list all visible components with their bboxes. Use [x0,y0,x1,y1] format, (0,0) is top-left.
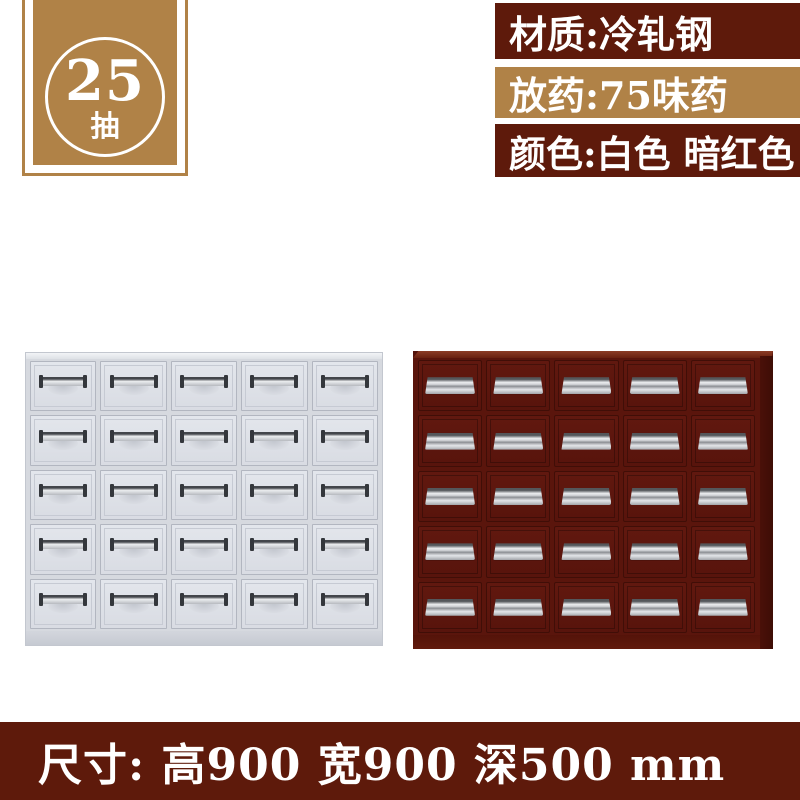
drawer [623,526,687,577]
drawer-handle [698,433,748,450]
drawer [486,471,550,522]
drawer-handle [112,595,156,604]
drawer [486,415,550,466]
spec-label-capacity: 放药:75味药 [495,67,800,118]
badge-inner-square: 25 抽 [33,0,177,165]
drawer-handle [493,377,543,394]
drawer-handle [112,540,156,549]
drawer [171,361,237,411]
drawer [691,582,755,633]
cabinet-red-base [413,635,760,649]
drawer [486,526,550,577]
drawer [554,582,618,633]
cabinet-red-side-panel [760,356,773,649]
cabinet-white-top-edge [26,353,382,359]
spec-label-material: 材质:冷轧钢 [495,3,800,59]
drawer-handle [252,486,296,495]
drawer-handle [630,543,680,560]
drawer [623,415,687,466]
drawer-handle [630,599,680,616]
drawer [171,415,237,465]
drawer [486,582,550,633]
drawer [30,470,96,520]
drawer-handle [425,433,475,450]
drawer [691,471,755,522]
drawer-handle [182,486,226,495]
drawer-handle [41,432,85,441]
drawer-handle [493,433,543,450]
drawer [312,415,378,465]
badge-unit: 抽 [90,112,119,141]
drawer [554,415,618,466]
drawer [171,579,237,629]
drawer [100,361,166,411]
drawer-handle [630,433,680,450]
drawer [418,582,482,633]
drawer-handle [252,377,296,386]
drawer-handle [698,377,748,394]
cabinet-white [25,352,383,646]
drawer-handle [182,540,226,549]
drawer-handle [630,377,680,394]
drawer-handle [561,599,611,616]
drawer [241,579,307,629]
drawer [418,471,482,522]
drawer [100,470,166,520]
drawer [171,524,237,574]
drawer-handle [252,432,296,441]
drawer-handle [323,595,367,604]
drawer [241,415,307,465]
spec-label-colors: 颜色:白色 暗红色 [495,124,800,177]
cabinet-white-drawer-grid [30,361,378,629]
drawer [554,526,618,577]
badge-circle: 25 抽 [45,37,165,157]
drawer-handle [493,543,543,560]
drawer [418,526,482,577]
drawer [312,579,378,629]
drawer-handle [323,486,367,495]
drawer [554,360,618,411]
drawer-handle [41,595,85,604]
drawer [30,415,96,465]
drawer [100,524,166,574]
drawer [100,415,166,465]
drawer-handle [252,540,296,549]
cabinet-red-drawer-grid [418,360,755,633]
drawer-handle [425,377,475,394]
drawer-handle [561,377,611,394]
drawer [241,524,307,574]
drawer [623,471,687,522]
drawer [691,526,755,577]
drawer-handle [323,432,367,441]
product-image: 25 抽 材质:冷轧钢 放药:75味药 颜色:白色 暗红色 尺寸: 高900 宽… [0,0,800,800]
cabinet-dark-red [413,351,773,649]
drawer-handle [41,486,85,495]
drawer [554,471,618,522]
drawer [30,579,96,629]
drawer-handle [182,595,226,604]
drawer-handle [323,540,367,549]
drawer [171,470,237,520]
drawer-handle [698,543,748,560]
drawer-handle [561,433,611,450]
drawer-handle [493,599,543,616]
drawer-handle [41,377,85,386]
cabinet-red-top-edge [413,351,773,358]
drawer [623,582,687,633]
drawer [691,415,755,466]
drawer-handle [112,432,156,441]
drawer-handle [493,488,543,505]
drawer-handle [630,488,680,505]
drawer-handle [561,543,611,560]
drawer [312,470,378,520]
drawer [691,360,755,411]
drawer-handle [698,599,748,616]
drawer [486,360,550,411]
drawer [241,361,307,411]
drawer-handle [425,488,475,505]
drawer [623,360,687,411]
drawer-handle [182,377,226,386]
badge-number: 25 [65,53,145,109]
drawer-handle [182,432,226,441]
drawer [418,415,482,466]
drawer [312,361,378,411]
drawer-handle [41,540,85,549]
drawer [30,524,96,574]
drawer [312,524,378,574]
drawer [241,470,307,520]
drawer [100,579,166,629]
cabinet-white-base [26,631,382,645]
drawer-handle [323,377,367,386]
drawer-handle [425,543,475,560]
drawer-handle [561,488,611,505]
dimensions-bar: 尺寸: 高900 宽900 深500 mm [0,722,800,800]
cabinet-red-front [413,358,760,649]
drawer-count-badge: 25 抽 [22,0,188,176]
drawer [30,361,96,411]
drawer-handle [252,595,296,604]
drawer-handle [112,486,156,495]
drawer-handle [425,599,475,616]
drawer [418,360,482,411]
drawer-handle [112,377,156,386]
drawer-handle [698,488,748,505]
